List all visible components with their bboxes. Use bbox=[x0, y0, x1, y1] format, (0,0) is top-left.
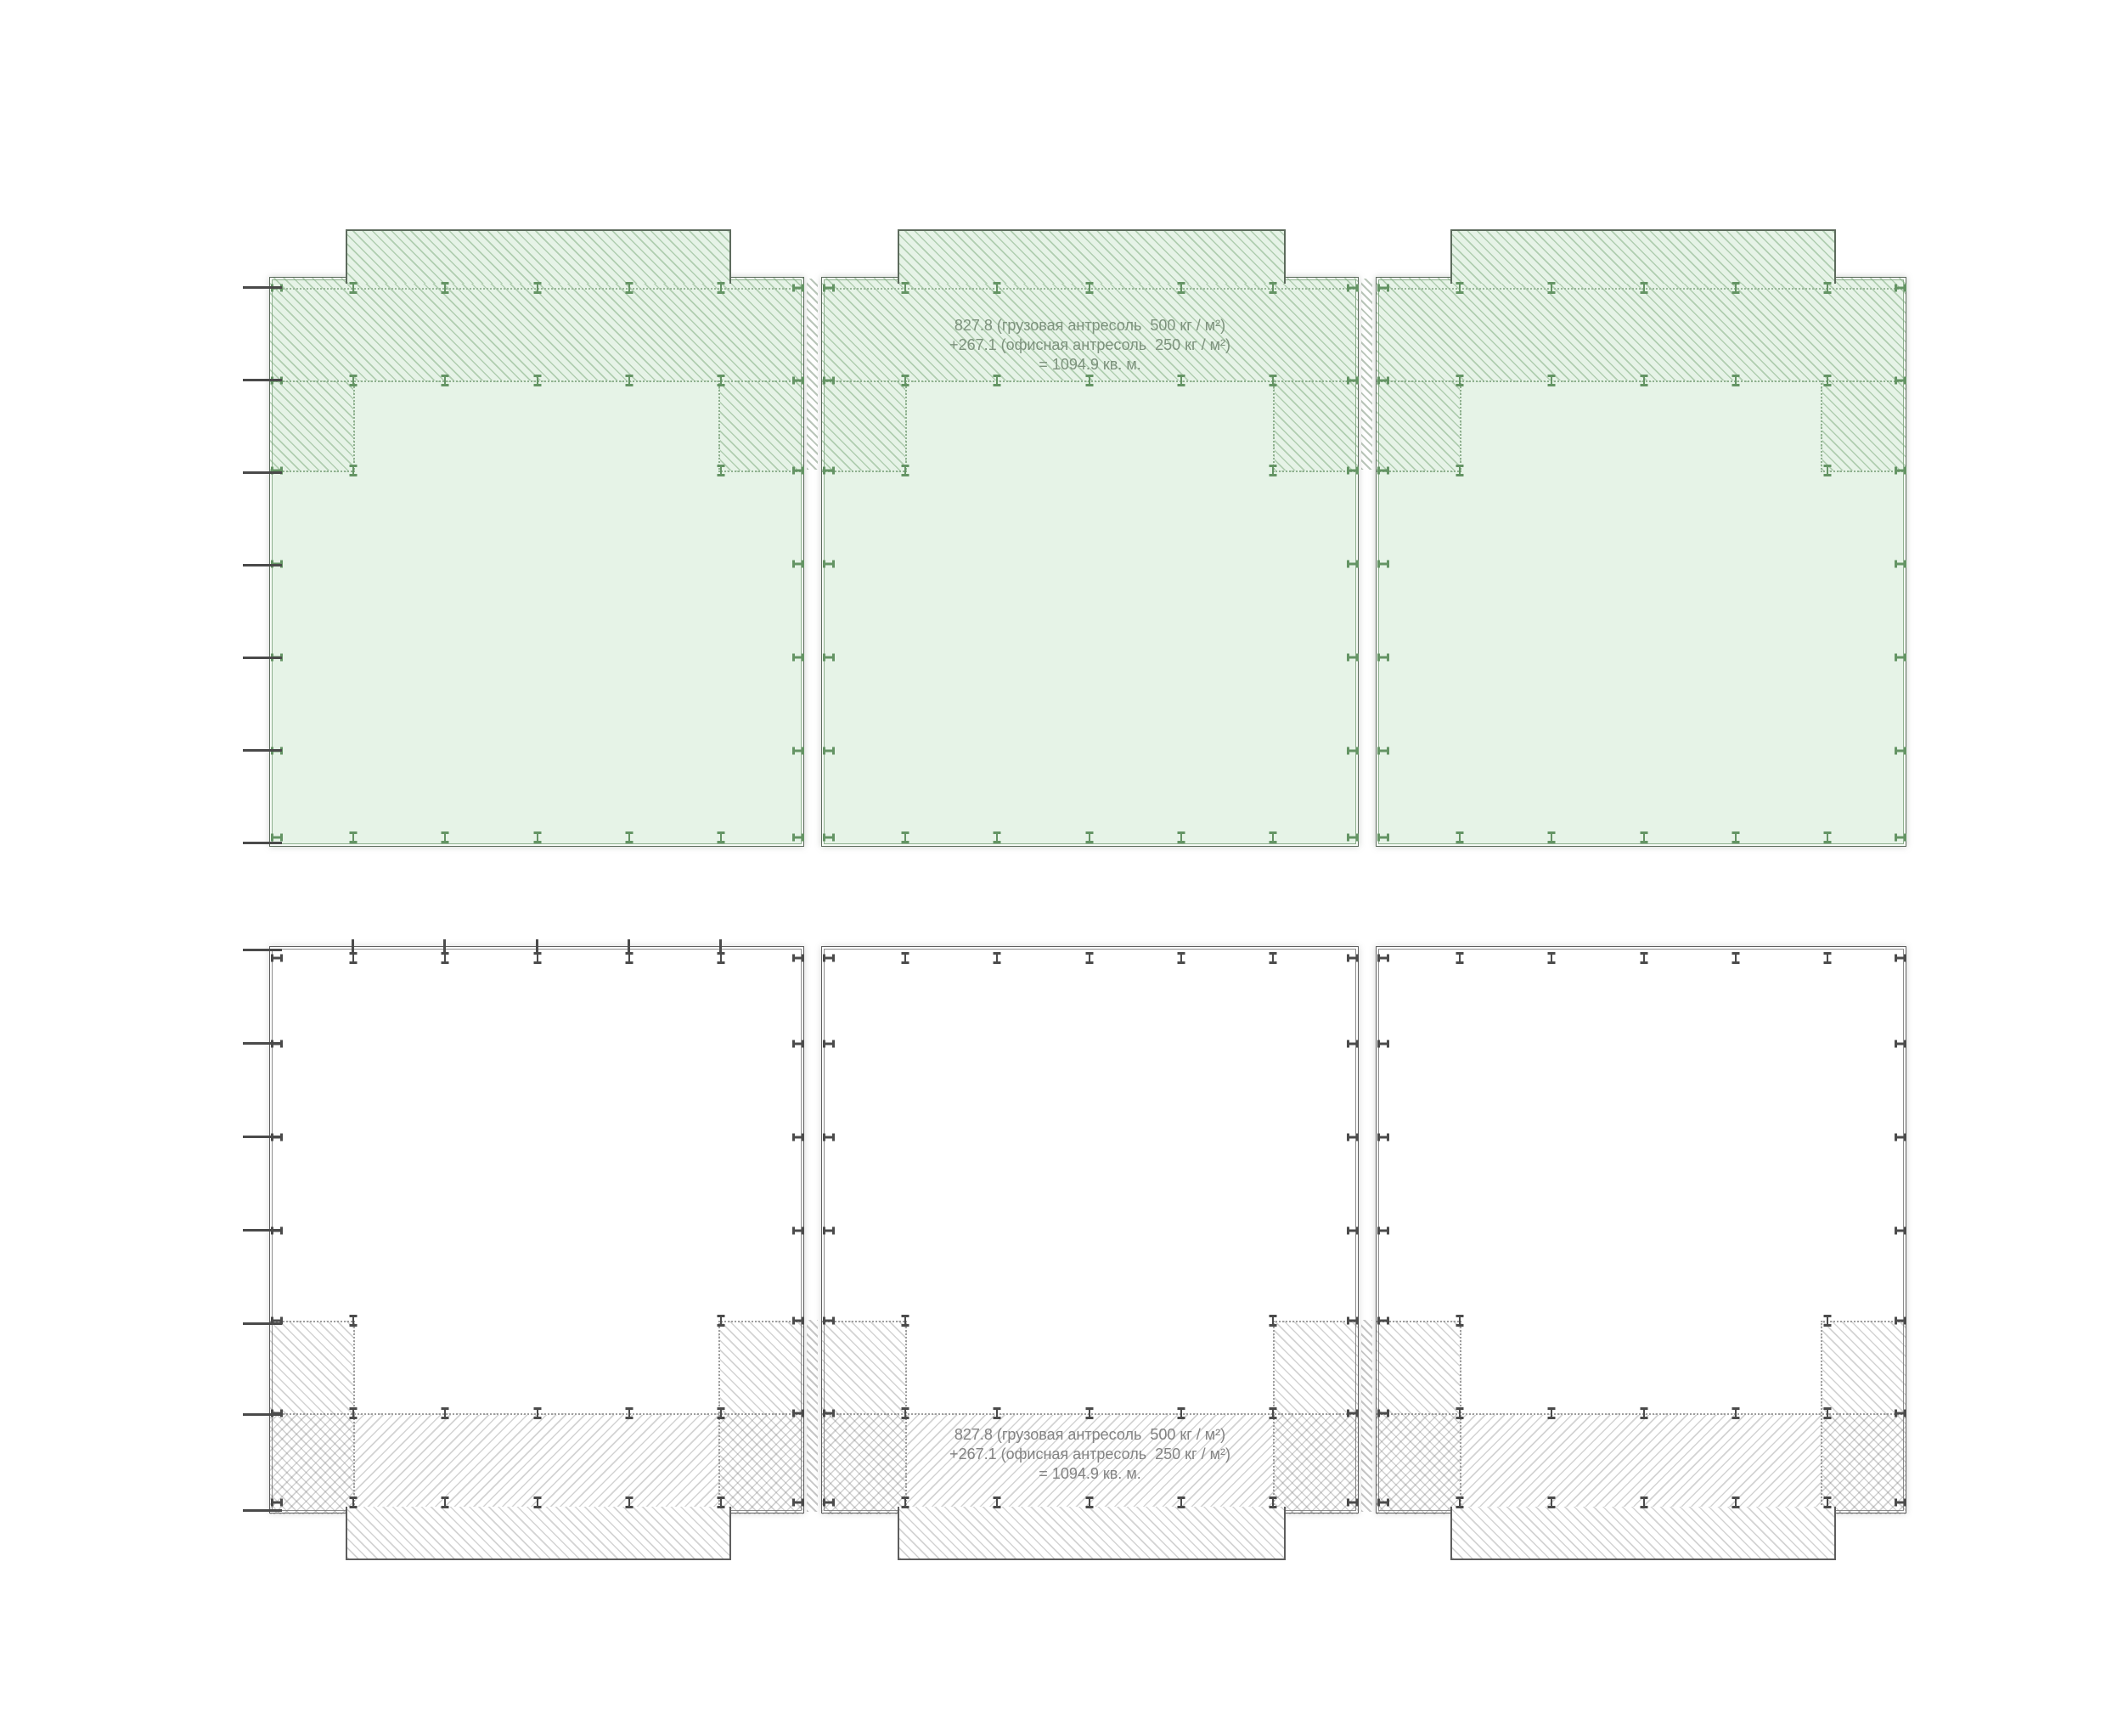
column-marker bbox=[1456, 1315, 1464, 1327]
column-marker bbox=[902, 831, 909, 843]
dimension-tick bbox=[243, 286, 282, 289]
column-marker bbox=[1548, 375, 1556, 386]
column-marker bbox=[1377, 285, 1389, 292]
mezzanine-block-left bbox=[270, 380, 355, 472]
column-marker bbox=[1895, 955, 1906, 962]
column-marker bbox=[1732, 952, 1740, 964]
column-marker bbox=[1895, 467, 1906, 475]
column-marker bbox=[1270, 375, 1277, 386]
column-marker bbox=[1548, 1407, 1556, 1419]
column-marker bbox=[823, 834, 835, 842]
dimension-tick bbox=[243, 1413, 282, 1416]
column-marker bbox=[1895, 654, 1906, 662]
column-marker bbox=[1178, 831, 1185, 843]
column-marker bbox=[1824, 1315, 1832, 1327]
plan-tab bbox=[898, 229, 1286, 284]
area-annotation-line1: 827.8 (грузовая антресоль 500 кг / м²) bbox=[949, 1425, 1230, 1445]
column-marker bbox=[534, 282, 542, 294]
dimension-tick bbox=[243, 471, 282, 474]
plan-tab bbox=[346, 229, 731, 284]
column-marker bbox=[1086, 1496, 1094, 1508]
plan-junction-hatch bbox=[807, 279, 818, 470]
column-marker bbox=[442, 1407, 449, 1419]
mezzanine-strip-left bbox=[270, 1321, 355, 1514]
column-marker bbox=[626, 1496, 633, 1508]
column-marker bbox=[1086, 375, 1094, 386]
column-marker bbox=[1824, 831, 1832, 843]
column-marker bbox=[792, 467, 804, 475]
dimension-tick bbox=[243, 1509, 282, 1512]
dimension-tick bbox=[243, 1042, 282, 1045]
column-marker bbox=[1641, 1407, 1648, 1419]
column-marker bbox=[1824, 1496, 1832, 1508]
column-marker bbox=[534, 1407, 542, 1419]
column-marker bbox=[1895, 1134, 1906, 1141]
column-marker bbox=[1377, 377, 1389, 385]
column-marker bbox=[823, 747, 835, 755]
column-marker bbox=[1456, 465, 1464, 476]
area-annotation: 827.8 (грузовая антресоль 500 кг / м²)+2… bbox=[949, 1425, 1230, 1484]
column-marker bbox=[994, 952, 1001, 964]
column-marker bbox=[1086, 831, 1094, 843]
column-marker bbox=[1377, 1410, 1389, 1418]
column-marker bbox=[1178, 375, 1185, 386]
column-marker bbox=[1895, 285, 1906, 292]
column-marker bbox=[1178, 1407, 1185, 1419]
column-marker bbox=[1895, 561, 1906, 568]
plan-tab bbox=[1450, 1507, 1836, 1560]
column-marker bbox=[718, 282, 725, 294]
column-marker bbox=[1456, 282, 1464, 294]
column-marker bbox=[792, 561, 804, 568]
column-marker bbox=[823, 1040, 835, 1048]
area-annotation-line3: = 1094.9 кв. м. bbox=[949, 1464, 1230, 1484]
dimension-tick bbox=[243, 564, 282, 566]
column-marker bbox=[1377, 1499, 1389, 1507]
column-marker bbox=[792, 1040, 804, 1048]
mezzanine-strip-right bbox=[1273, 1321, 1358, 1514]
column-marker bbox=[718, 1496, 725, 1508]
column-marker bbox=[1377, 1317, 1389, 1325]
column-marker bbox=[1456, 952, 1464, 964]
column-marker bbox=[902, 1496, 909, 1508]
column-marker bbox=[1270, 282, 1277, 294]
column-marker bbox=[1732, 375, 1740, 386]
column-marker bbox=[792, 1227, 804, 1235]
column-marker bbox=[534, 831, 542, 843]
column-marker bbox=[823, 377, 835, 385]
dimension-tick bbox=[243, 1322, 282, 1325]
column-marker bbox=[1377, 654, 1389, 662]
dimension-tick bbox=[628, 939, 630, 954]
column-marker bbox=[271, 955, 283, 962]
column-marker bbox=[442, 282, 449, 294]
column-marker bbox=[1456, 1407, 1464, 1419]
column-marker bbox=[1895, 1040, 1906, 1048]
column-marker bbox=[1347, 654, 1359, 662]
column-marker bbox=[350, 282, 358, 294]
area-annotation: 827.8 (грузовая антресоль 500 кг / м²)+2… bbox=[949, 316, 1230, 375]
mezzanine-strip-left bbox=[1377, 1321, 1461, 1514]
column-marker bbox=[626, 831, 633, 843]
column-marker bbox=[1178, 282, 1185, 294]
plan-outline bbox=[1376, 946, 1906, 1513]
column-marker bbox=[350, 375, 358, 386]
column-marker bbox=[442, 375, 449, 386]
plan-tab bbox=[1450, 229, 1836, 284]
area-annotation-line2: +267.1 (офисная антресоль 250 кг / м²) bbox=[949, 335, 1230, 355]
dimension-tick bbox=[719, 939, 722, 954]
column-marker bbox=[1377, 1040, 1389, 1048]
plan-tab bbox=[346, 1507, 731, 1560]
mezzanine-strip-left bbox=[822, 1321, 907, 1514]
area-annotation-line2: +267.1 (офисная антресоль 250 кг / м²) bbox=[949, 1445, 1230, 1464]
column-marker bbox=[1824, 375, 1832, 386]
column-marker bbox=[902, 1315, 909, 1327]
plan-junction-hatch bbox=[1361, 1320, 1372, 1512]
floor-plan-top-left bbox=[269, 229, 804, 845]
floor-plan-top-middle: 827.8 (грузовая антресоль 500 кг / м²)+2… bbox=[821, 229, 1359, 845]
column-marker bbox=[718, 952, 725, 964]
column-marker bbox=[1270, 1315, 1277, 1327]
column-marker bbox=[1377, 561, 1389, 568]
dimension-tick bbox=[243, 1229, 282, 1232]
column-marker bbox=[534, 952, 542, 964]
column-marker bbox=[823, 955, 835, 962]
plan-junction-hatch bbox=[807, 1320, 818, 1512]
column-marker bbox=[718, 1315, 725, 1327]
column-marker bbox=[1347, 285, 1359, 292]
column-marker bbox=[1086, 282, 1094, 294]
column-marker bbox=[1347, 1134, 1359, 1141]
floor-plan-top-right bbox=[1376, 229, 1906, 845]
plan-outline bbox=[269, 946, 804, 1513]
column-marker bbox=[718, 375, 725, 386]
column-marker bbox=[1456, 831, 1464, 843]
column-marker bbox=[792, 654, 804, 662]
column-marker bbox=[442, 952, 449, 964]
dimension-tick bbox=[352, 939, 354, 954]
column-marker bbox=[902, 465, 909, 476]
plan-tab bbox=[898, 1507, 1286, 1560]
column-marker bbox=[792, 1317, 804, 1325]
column-marker bbox=[1456, 375, 1464, 386]
column-marker bbox=[1178, 1496, 1185, 1508]
floor-plan-bottom-left bbox=[269, 946, 804, 1558]
column-marker bbox=[271, 834, 283, 842]
column-marker bbox=[1548, 831, 1556, 843]
mezzanine-block-right bbox=[718, 380, 803, 472]
column-marker bbox=[994, 1496, 1001, 1508]
column-marker bbox=[1895, 1227, 1906, 1235]
column-marker bbox=[350, 952, 358, 964]
dimension-tick bbox=[443, 939, 446, 954]
mezzanine-strip-right bbox=[1821, 1321, 1906, 1514]
column-marker bbox=[1824, 282, 1832, 294]
column-marker bbox=[1548, 282, 1556, 294]
column-marker bbox=[823, 1499, 835, 1507]
column-marker bbox=[718, 831, 725, 843]
column-marker bbox=[718, 465, 725, 476]
column-marker bbox=[1086, 952, 1094, 964]
floor-plan-bottom-middle: 827.8 (грузовая антресоль 500 кг / м²)+2… bbox=[821, 946, 1359, 1558]
column-marker bbox=[823, 1227, 835, 1235]
column-marker bbox=[1824, 1407, 1832, 1419]
dimension-tick bbox=[243, 1136, 282, 1138]
mezzanine-strip-right bbox=[718, 1321, 803, 1514]
column-marker bbox=[902, 952, 909, 964]
column-marker bbox=[350, 465, 358, 476]
column-marker bbox=[994, 282, 1001, 294]
column-marker bbox=[718, 1407, 725, 1419]
column-marker bbox=[1895, 1317, 1906, 1325]
column-marker bbox=[1270, 952, 1277, 964]
column-marker bbox=[1641, 831, 1648, 843]
column-marker bbox=[626, 952, 633, 964]
column-marker bbox=[1824, 952, 1832, 964]
column-marker bbox=[1347, 1227, 1359, 1235]
column-marker bbox=[994, 831, 1001, 843]
column-marker bbox=[534, 375, 542, 386]
column-marker bbox=[1377, 747, 1389, 755]
column-marker bbox=[1270, 1496, 1277, 1508]
column-marker bbox=[1548, 952, 1556, 964]
column-marker bbox=[534, 1496, 542, 1508]
column-marker bbox=[1732, 1496, 1740, 1508]
mezzanine-block-left bbox=[822, 380, 907, 472]
column-marker bbox=[1086, 1407, 1094, 1419]
column-marker bbox=[1732, 1407, 1740, 1419]
column-marker bbox=[271, 1499, 283, 1507]
column-marker bbox=[1377, 1134, 1389, 1141]
dimension-tick bbox=[243, 949, 282, 951]
column-marker bbox=[1347, 377, 1359, 385]
dimension-tick bbox=[243, 379, 282, 381]
column-marker bbox=[1347, 1317, 1359, 1325]
area-annotation-line3: = 1094.9 кв. м. bbox=[949, 355, 1230, 375]
column-marker bbox=[350, 1315, 358, 1327]
column-marker bbox=[1895, 377, 1906, 385]
column-marker bbox=[792, 1499, 804, 1507]
column-marker bbox=[1641, 1496, 1648, 1508]
column-marker bbox=[1347, 955, 1359, 962]
column-marker bbox=[1270, 831, 1277, 843]
column-marker bbox=[1347, 1499, 1359, 1507]
column-marker bbox=[626, 1407, 633, 1419]
column-marker bbox=[1347, 561, 1359, 568]
column-marker bbox=[350, 1407, 358, 1419]
column-marker bbox=[902, 375, 909, 386]
column-marker bbox=[823, 1134, 835, 1141]
dimension-tick bbox=[536, 939, 538, 954]
plan-junction-hatch bbox=[1361, 279, 1372, 470]
column-marker bbox=[1641, 952, 1648, 964]
floor-plan-bottom-right bbox=[1376, 946, 1906, 1558]
column-marker bbox=[1270, 465, 1277, 476]
column-marker bbox=[1548, 1496, 1556, 1508]
column-marker bbox=[1347, 467, 1359, 475]
plan-outline bbox=[1376, 277, 1906, 847]
area-annotation-line1: 827.8 (грузовая антресоль 500 кг / м²) bbox=[949, 316, 1230, 335]
column-marker bbox=[792, 955, 804, 962]
mezzanine-block-left bbox=[1377, 380, 1461, 472]
column-marker bbox=[1732, 282, 1740, 294]
dimension-tick bbox=[243, 749, 282, 752]
column-marker bbox=[994, 375, 1001, 386]
column-marker bbox=[626, 282, 633, 294]
plan-outline bbox=[269, 277, 804, 847]
floor-plans-canvas: 827.8 (грузовая антресоль 500 кг / м²)+2… bbox=[0, 0, 2106, 1736]
column-marker bbox=[1377, 955, 1389, 962]
column-marker bbox=[626, 375, 633, 386]
column-marker bbox=[1270, 1407, 1277, 1419]
column-marker bbox=[1895, 1410, 1906, 1418]
column-marker bbox=[902, 282, 909, 294]
column-marker bbox=[1895, 1499, 1906, 1507]
column-marker bbox=[823, 654, 835, 662]
column-marker bbox=[350, 1496, 358, 1508]
column-marker bbox=[792, 377, 804, 385]
column-marker bbox=[792, 1134, 804, 1141]
column-marker bbox=[792, 747, 804, 755]
column-marker bbox=[1178, 952, 1185, 964]
column-marker bbox=[1895, 747, 1906, 755]
column-marker bbox=[1347, 834, 1359, 842]
column-marker bbox=[823, 467, 835, 475]
column-marker bbox=[792, 285, 804, 292]
column-marker bbox=[1347, 1410, 1359, 1418]
column-marker bbox=[823, 561, 835, 568]
column-marker bbox=[792, 834, 804, 842]
column-marker bbox=[823, 285, 835, 292]
dimension-tick bbox=[243, 657, 282, 659]
column-marker bbox=[1347, 1040, 1359, 1048]
column-marker bbox=[1377, 1227, 1389, 1235]
column-marker bbox=[1641, 375, 1648, 386]
column-marker bbox=[994, 1407, 1001, 1419]
column-marker bbox=[1456, 1496, 1464, 1508]
column-marker bbox=[1347, 747, 1359, 755]
column-marker bbox=[792, 1410, 804, 1418]
column-marker bbox=[823, 1410, 835, 1418]
column-marker bbox=[1824, 465, 1832, 476]
column-marker bbox=[1732, 831, 1740, 843]
dimension-tick bbox=[243, 842, 282, 844]
mezzanine-block-right bbox=[1821, 380, 1906, 472]
column-marker bbox=[1377, 467, 1389, 475]
column-marker bbox=[442, 1496, 449, 1508]
mezzanine-block-right bbox=[1273, 380, 1358, 472]
column-marker bbox=[823, 1317, 835, 1325]
column-marker bbox=[1377, 834, 1389, 842]
column-marker bbox=[350, 831, 358, 843]
column-marker bbox=[442, 831, 449, 843]
column-marker bbox=[1641, 282, 1648, 294]
column-marker bbox=[902, 1407, 909, 1419]
column-marker bbox=[1895, 834, 1906, 842]
